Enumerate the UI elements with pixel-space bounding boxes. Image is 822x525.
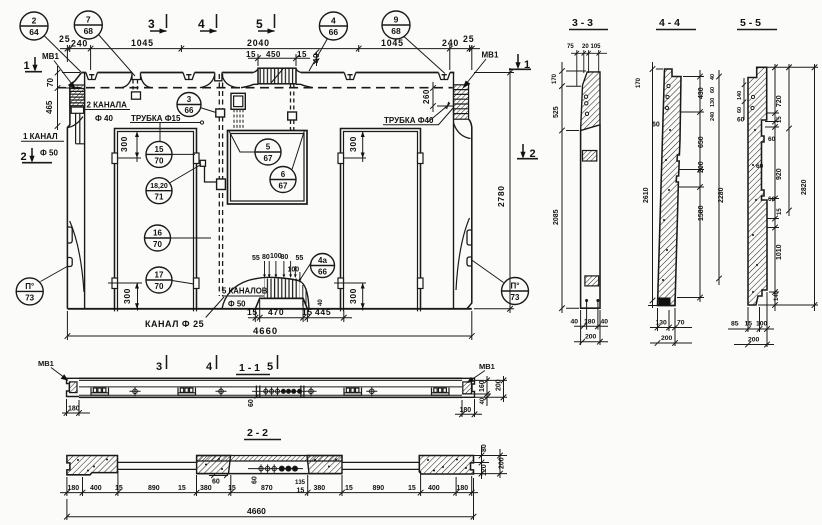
svg-text:380: 380 [200, 485, 212, 492]
svg-text:55: 55 [252, 255, 260, 262]
svg-text:80: 80 [262, 254, 270, 261]
svg-text:2780: 2780 [496, 185, 506, 207]
svg-text:15: 15 [155, 145, 164, 154]
svg-text:300: 300 [348, 288, 358, 304]
svg-text:МВ1: МВ1 [42, 52, 59, 61]
svg-text:720: 720 [776, 95, 783, 107]
svg-text:70: 70 [155, 156, 164, 165]
svg-text:240: 240 [71, 39, 88, 49]
svg-text:15: 15 [297, 50, 307, 59]
svg-text:Ф 50: Ф 50 [40, 149, 59, 158]
svg-text:445: 445 [315, 307, 331, 317]
svg-text:40: 40 [318, 299, 324, 306]
svg-text:4 - 4: 4 - 4 [659, 17, 680, 29]
svg-text:17: 17 [155, 271, 164, 280]
svg-text:2085: 2085 [553, 209, 560, 225]
svg-text:430: 430 [698, 87, 705, 99]
svg-text:3: 3 [148, 17, 155, 31]
svg-text:450: 450 [266, 50, 281, 59]
svg-text:80: 80 [281, 254, 289, 261]
svg-text:380: 380 [314, 485, 326, 492]
svg-text:ТРУБКА Ф40: ТРУБКА Ф40 [384, 116, 434, 125]
svg-text:300: 300 [122, 288, 132, 304]
svg-text:73: 73 [25, 293, 34, 302]
svg-text:120: 120 [481, 464, 488, 476]
svg-text:67: 67 [279, 182, 288, 191]
svg-text:5 - 5: 5 - 5 [740, 17, 761, 29]
svg-text:2610: 2610 [643, 187, 650, 203]
svg-text:МВ1: МВ1 [479, 362, 495, 371]
svg-text:2040: 2040 [247, 38, 270, 48]
svg-text:70: 70 [153, 240, 162, 249]
svg-text:200: 200 [748, 337, 760, 344]
svg-text:470: 470 [268, 307, 284, 317]
svg-text:180: 180 [460, 407, 472, 414]
svg-text:400: 400 [428, 485, 440, 492]
svg-text:15: 15 [246, 50, 256, 59]
svg-text:180: 180 [584, 319, 596, 326]
svg-text:73: 73 [511, 293, 520, 302]
svg-text:1045: 1045 [381, 38, 404, 48]
svg-text:66: 66 [329, 27, 339, 37]
svg-text:60: 60 [212, 479, 220, 486]
svg-text:870: 870 [261, 485, 273, 492]
svg-text:60: 60 [652, 122, 660, 129]
svg-text:4660: 4660 [253, 326, 278, 337]
svg-text:180: 180 [457, 485, 469, 492]
svg-text:890: 890 [373, 485, 385, 492]
svg-text:3: 3 [156, 361, 162, 373]
svg-text:1: 1 [524, 59, 530, 71]
svg-text:1 КАНАЛ: 1 КАНАЛ [23, 132, 58, 141]
svg-text:4660: 4660 [247, 506, 266, 516]
svg-text:60: 60 [737, 117, 745, 124]
svg-text:4: 4 [331, 16, 336, 26]
svg-text:525: 525 [553, 106, 560, 118]
svg-text:4: 4 [198, 17, 205, 31]
svg-text:КАНАЛ Ф 25: КАНАЛ Ф 25 [145, 319, 204, 329]
svg-text:70: 70 [677, 320, 685, 327]
svg-text:130: 130 [656, 320, 668, 327]
svg-text:170: 170 [636, 77, 642, 88]
svg-text:200: 200 [585, 334, 597, 341]
svg-text:1045: 1045 [131, 38, 154, 48]
svg-text:25: 25 [463, 34, 474, 44]
svg-text:5: 5 [256, 17, 263, 31]
svg-text:9: 9 [394, 15, 399, 25]
svg-text:300: 300 [119, 136, 129, 152]
svg-text:2: 2 [21, 151, 27, 163]
svg-text:15: 15 [777, 116, 783, 123]
svg-text:170: 170 [552, 73, 558, 84]
svg-text:2: 2 [530, 148, 536, 160]
svg-text:МВ1: МВ1 [482, 51, 499, 60]
svg-text:100: 100 [288, 267, 300, 274]
svg-text:3 - 3: 3 - 3 [572, 17, 593, 29]
svg-text:2: 2 [32, 16, 37, 26]
svg-text:Ф 50: Ф 50 [228, 300, 246, 309]
svg-text:160: 160 [479, 380, 486, 392]
svg-text:240: 240 [710, 112, 716, 121]
svg-text:85: 85 [731, 321, 739, 328]
svg-text:920: 920 [776, 168, 783, 180]
svg-text:Ф 40: Ф 40 [95, 114, 114, 123]
svg-text:П°: П° [511, 282, 520, 291]
svg-text:5: 5 [267, 361, 273, 373]
svg-text:60: 60 [768, 136, 776, 143]
svg-text:890: 890 [148, 485, 160, 492]
svg-text:20: 20 [582, 44, 589, 50]
svg-text:80: 80 [481, 444, 488, 452]
svg-text:55: 55 [296, 255, 304, 262]
svg-text:66: 66 [318, 268, 327, 277]
svg-text:15: 15 [228, 485, 236, 492]
svg-text:15: 15 [178, 485, 186, 492]
svg-text:15: 15 [302, 307, 313, 317]
svg-text:16: 16 [153, 229, 162, 238]
svg-text:140: 140 [737, 91, 743, 100]
svg-text:180: 180 [68, 406, 80, 413]
svg-text:68: 68 [391, 26, 401, 36]
svg-text:15: 15 [115, 485, 123, 492]
svg-text:15: 15 [777, 208, 783, 215]
svg-text:66: 66 [185, 106, 194, 115]
svg-text:4: 4 [206, 361, 213, 373]
svg-text:5 КАНАЛОВ: 5 КАНАЛОВ [222, 287, 268, 296]
svg-text:650: 650 [698, 136, 705, 148]
svg-text:4а: 4а [318, 256, 327, 265]
svg-text:465: 465 [45, 100, 54, 114]
svg-text:60: 60 [252, 476, 259, 484]
svg-text:40: 40 [480, 397, 486, 404]
svg-text:180: 180 [68, 485, 80, 492]
svg-text:68: 68 [84, 26, 94, 36]
svg-text:60: 60 [710, 87, 716, 93]
svg-text:ТРУБКА Ф15: ТРУБКА Ф15 [131, 114, 181, 123]
svg-text:400: 400 [90, 485, 102, 492]
svg-text:240: 240 [442, 38, 459, 48]
svg-text:60: 60 [248, 399, 255, 407]
svg-text:МВ1: МВ1 [38, 359, 54, 368]
svg-text:70: 70 [155, 282, 164, 291]
svg-text:135: 135 [295, 480, 306, 486]
svg-text:67: 67 [264, 154, 273, 163]
svg-text:40: 40 [601, 319, 609, 326]
svg-text:60: 60 [756, 163, 764, 170]
svg-text:6: 6 [281, 170, 286, 179]
svg-text:140: 140 [774, 290, 780, 301]
svg-text:75: 75 [567, 44, 574, 50]
svg-text:300: 300 [348, 136, 358, 152]
svg-text:15: 15 [297, 488, 305, 495]
svg-text:7: 7 [86, 15, 91, 25]
svg-text:60: 60 [737, 107, 743, 113]
svg-text:1 - 1: 1 - 1 [239, 362, 260, 374]
svg-text:15: 15 [408, 485, 416, 492]
svg-text:100: 100 [756, 321, 768, 328]
svg-text:1580: 1580 [698, 205, 705, 221]
svg-text:1: 1 [24, 60, 30, 72]
svg-text:2 - 2: 2 - 2 [247, 427, 268, 439]
svg-text:5: 5 [266, 143, 271, 152]
svg-text:15: 15 [745, 321, 753, 328]
svg-text:1010: 1010 [776, 244, 783, 260]
svg-text:40: 40 [710, 74, 716, 80]
svg-text:105: 105 [591, 44, 602, 50]
svg-text:3: 3 [187, 95, 192, 104]
svg-text:200: 200 [499, 457, 506, 469]
svg-text:70: 70 [46, 78, 55, 87]
svg-text:2820: 2820 [801, 179, 808, 195]
svg-text:200: 200 [661, 335, 673, 342]
svg-text:130: 130 [710, 98, 716, 107]
svg-text:200: 200 [496, 379, 503, 391]
svg-text:15: 15 [345, 485, 353, 492]
svg-text:25: 25 [59, 34, 70, 44]
svg-text:15: 15 [247, 307, 258, 317]
svg-text:18,20: 18,20 [150, 183, 168, 190]
svg-text:64: 64 [29, 27, 39, 37]
svg-text:П°: П° [25, 282, 34, 291]
svg-text:40: 40 [571, 319, 579, 326]
svg-text:200: 200 [698, 161, 705, 173]
svg-text:71: 71 [155, 193, 164, 202]
svg-text:260: 260 [422, 89, 431, 104]
svg-text:2 КАНАЛА: 2 КАНАЛА [87, 101, 128, 110]
